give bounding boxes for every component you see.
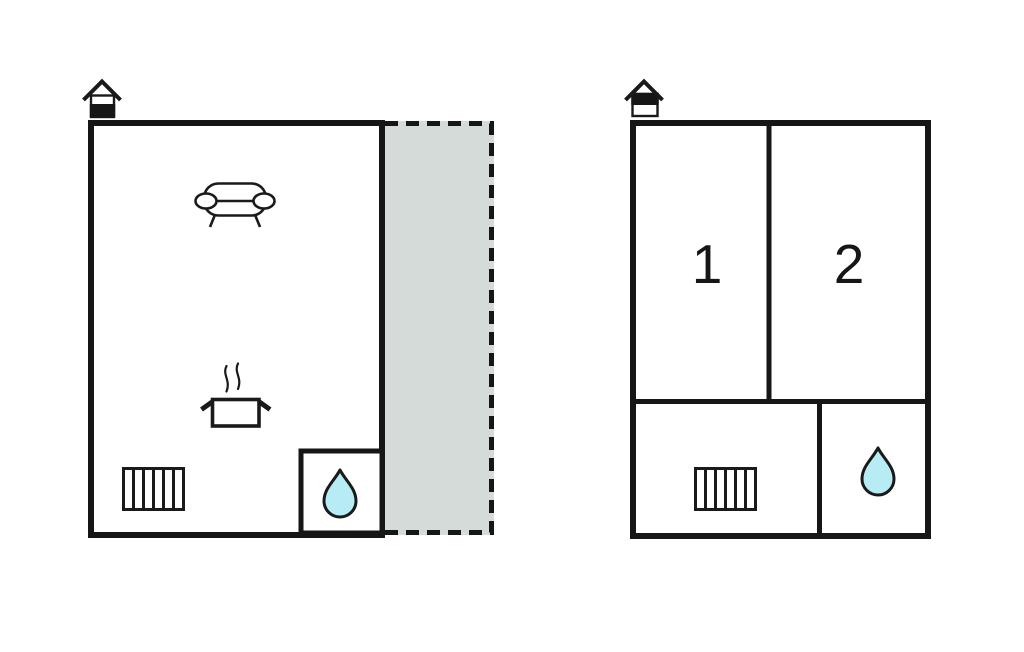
radiator-icon (124, 469, 184, 510)
radiator-icon (696, 469, 756, 510)
right-floor-plan: 1 2 (626, 82, 932, 537)
entrance-house-icon (626, 82, 663, 117)
entrance-house-icon (84, 82, 121, 118)
terrace-area (385, 121, 494, 535)
left-floor-plan (84, 82, 495, 536)
room-1-label: 1 (692, 233, 723, 295)
room-2-label: 2 (834, 233, 865, 295)
floor-plan-canvas: 1 2 (0, 0, 1024, 652)
